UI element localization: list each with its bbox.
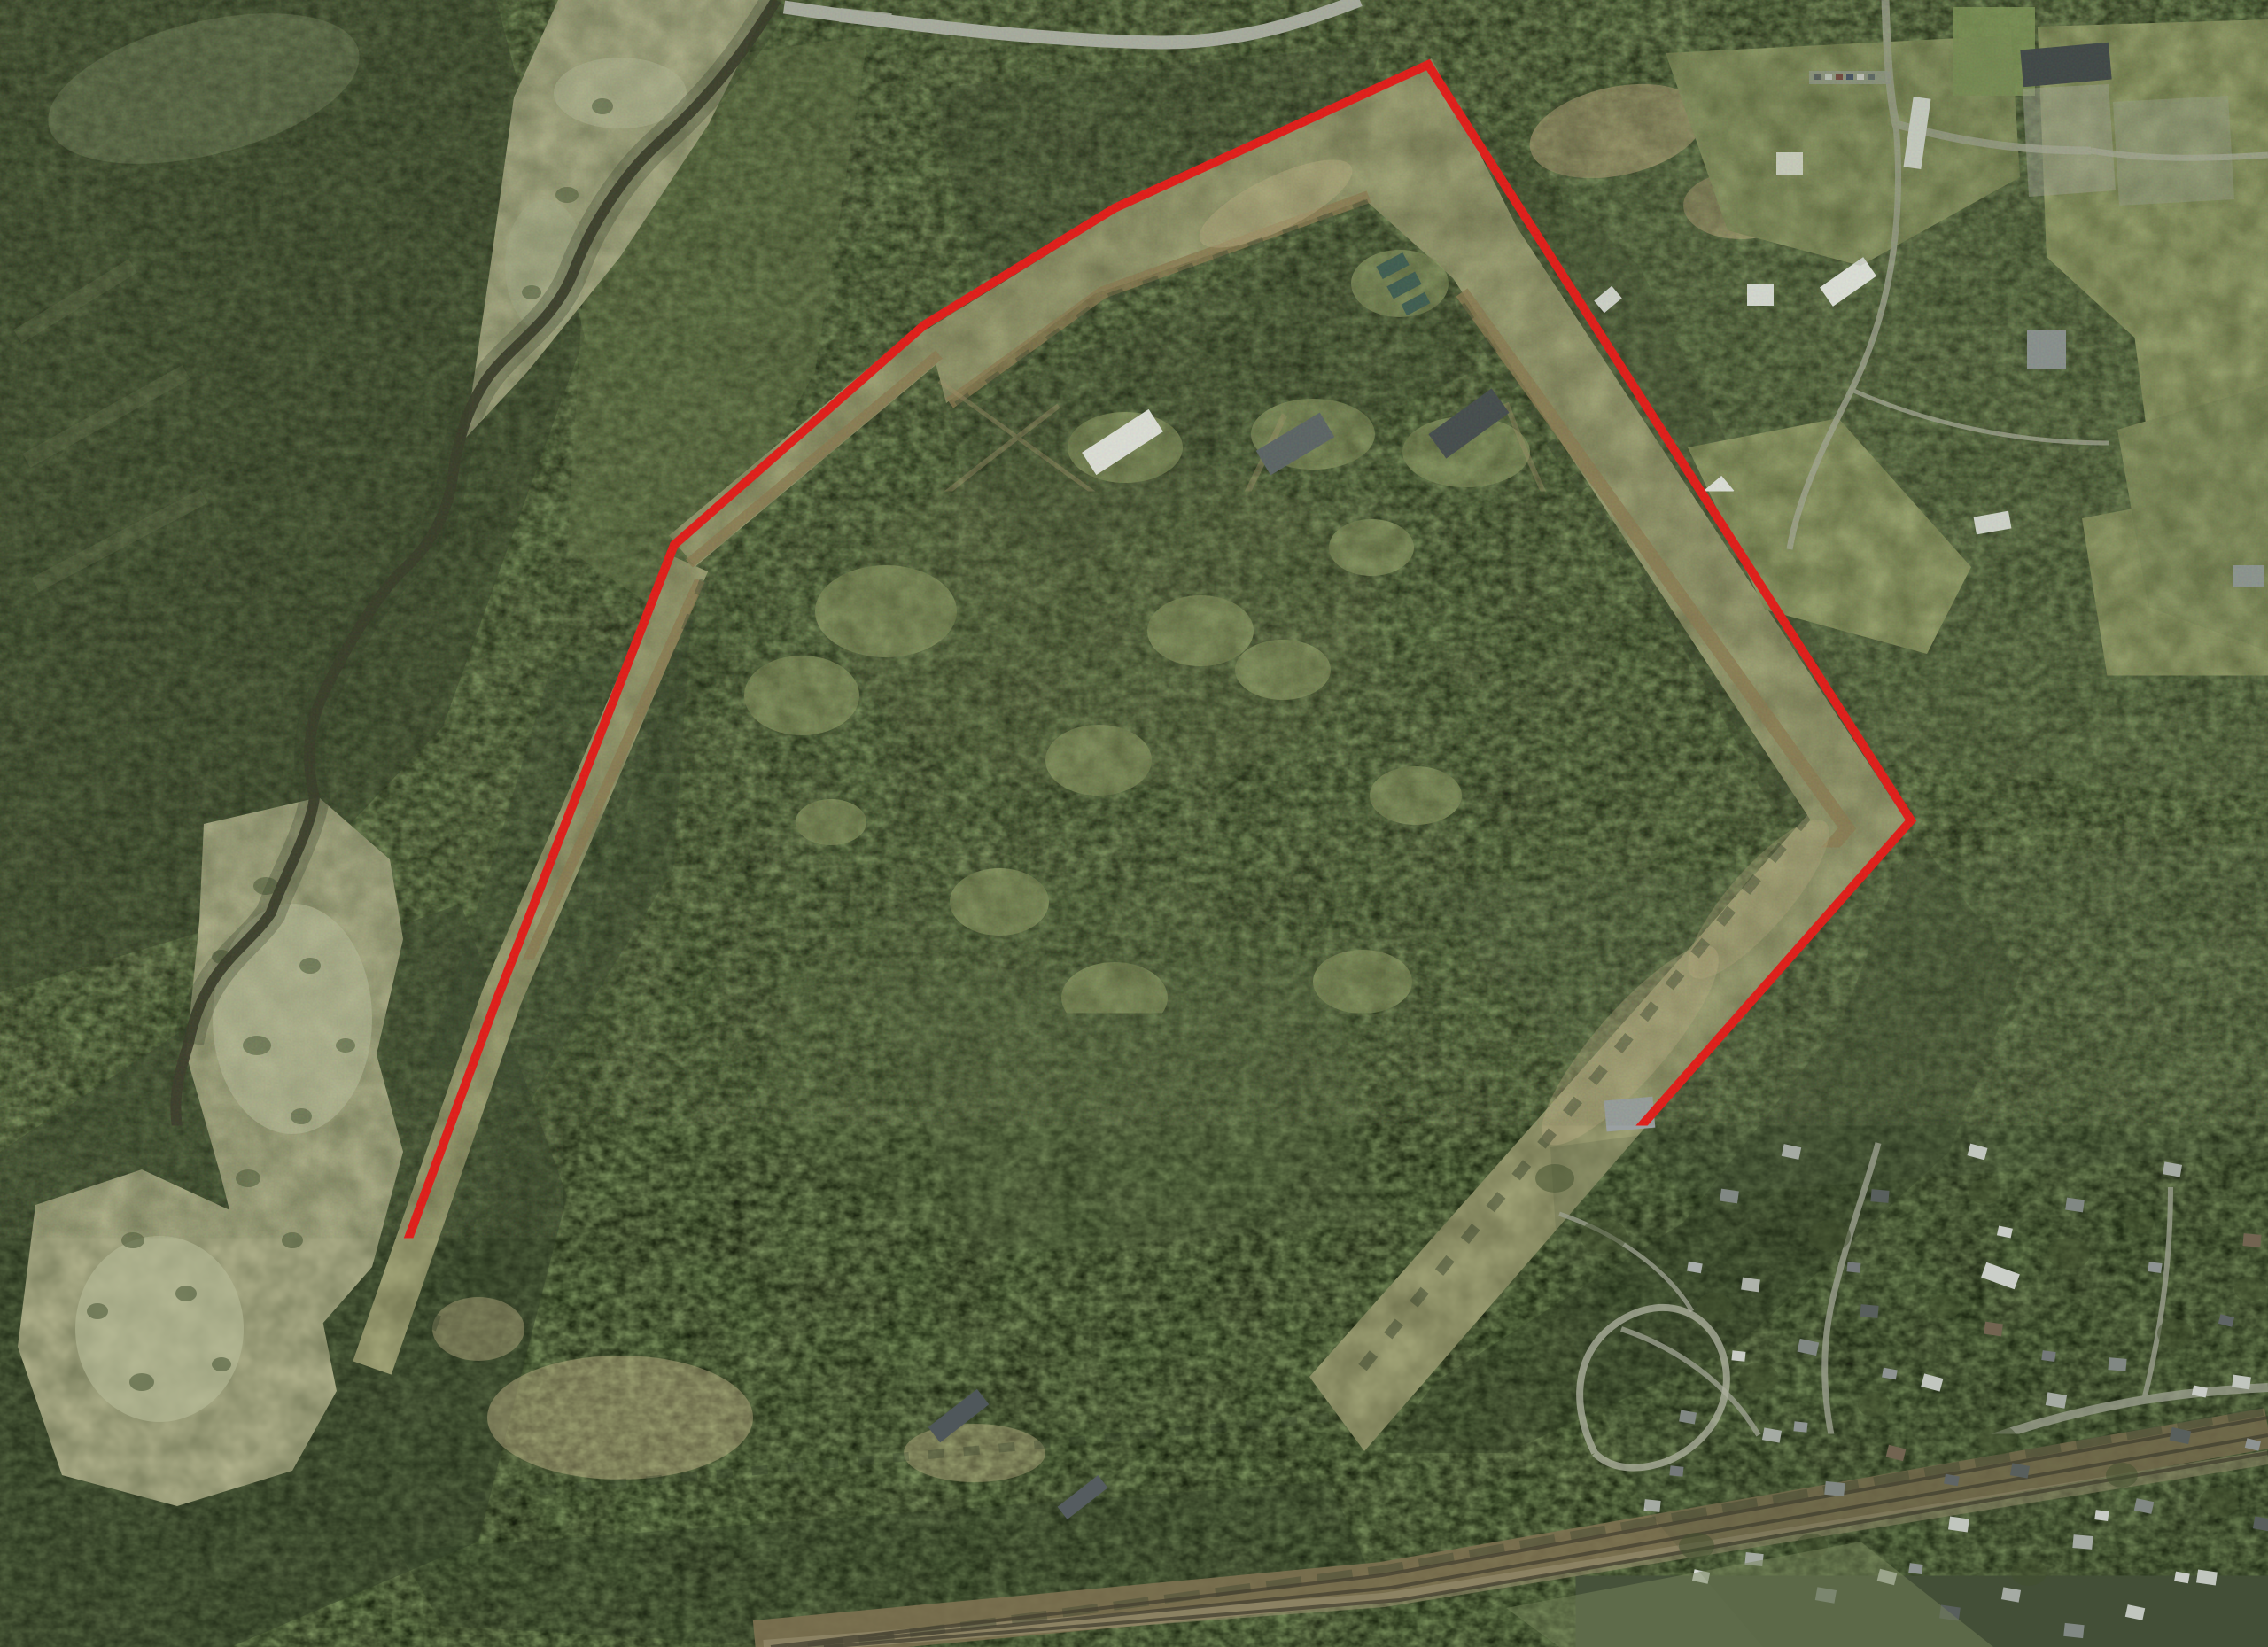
svg-text:УП «Проектный институт Белгипр: УП «Проектный институт Белгипрозем» xyxy=(2117,1634,2264,1643)
